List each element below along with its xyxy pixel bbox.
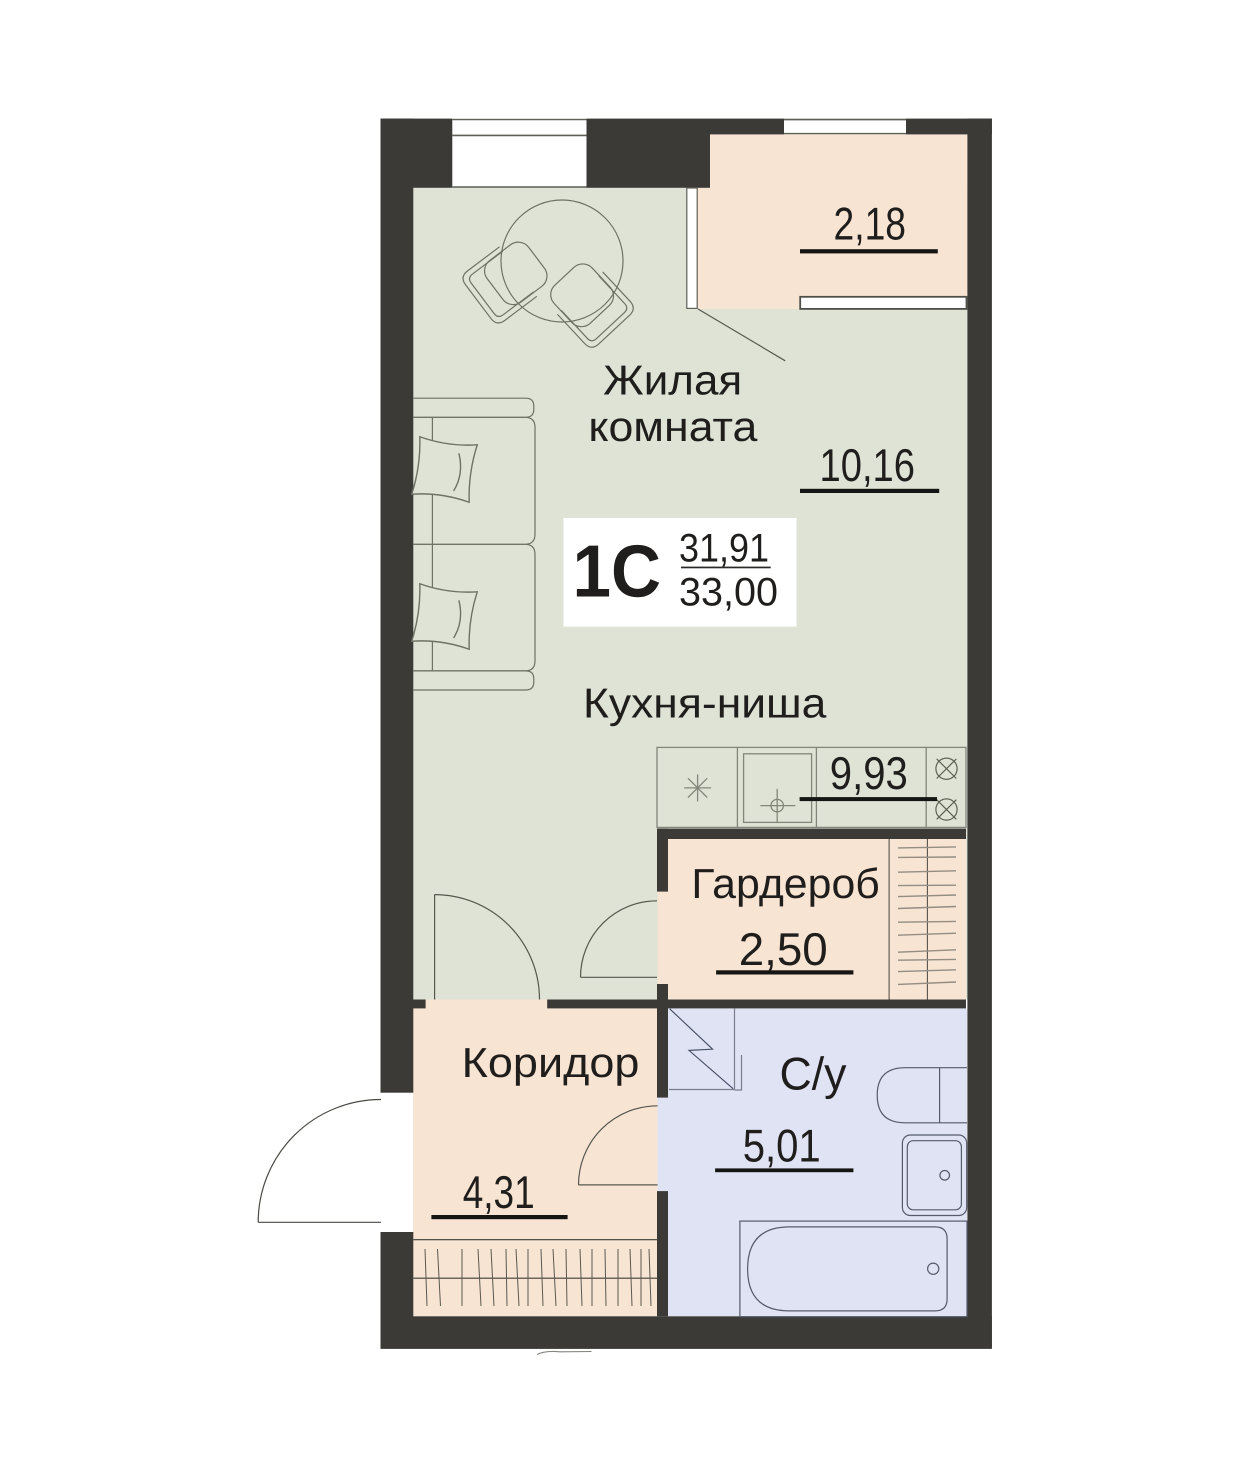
- svg-text:31,91: 31,91: [679, 527, 769, 571]
- svg-text:1С: 1С: [573, 530, 662, 613]
- svg-text:Коридор: Коридор: [462, 1039, 640, 1086]
- svg-text:С/у: С/у: [780, 1048, 847, 1100]
- svg-text:5,01: 5,01: [743, 1120, 821, 1172]
- svg-text:33,00: 33,00: [679, 570, 778, 614]
- svg-text:Кухня-ниша: Кухня-ниша: [583, 680, 827, 727]
- svg-text:2,50: 2,50: [739, 923, 828, 975]
- svg-text:9,93: 9,93: [830, 747, 908, 799]
- svg-text:4,31: 4,31: [463, 1166, 535, 1218]
- svg-text:Гардероб: Гардероб: [691, 860, 879, 907]
- svg-text:10,16: 10,16: [820, 439, 916, 491]
- svg-text:Жилая: Жилая: [603, 356, 742, 403]
- svg-text:комната: комната: [588, 403, 758, 450]
- svg-text:2,18: 2,18: [834, 198, 907, 250]
